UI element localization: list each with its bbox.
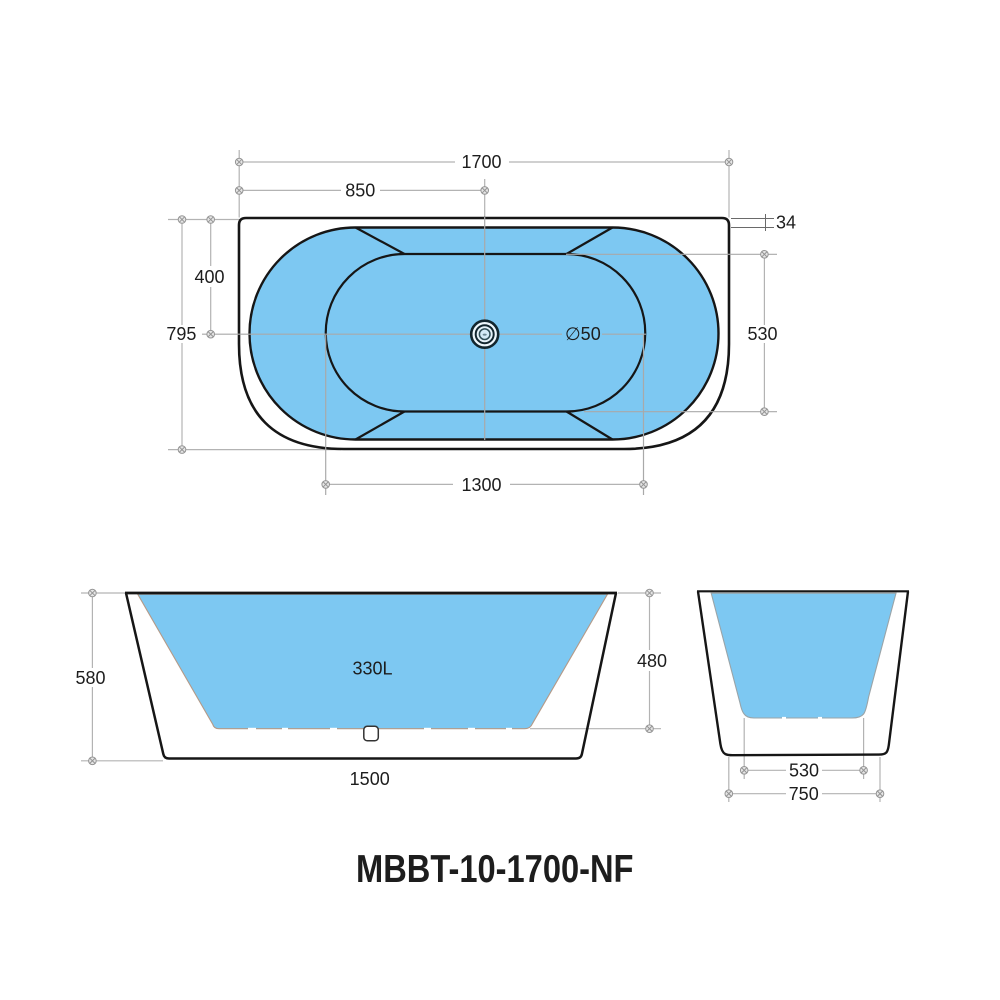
- svg-text:MBBT-10-1700-NF: MBBT-10-1700-NF: [356, 848, 634, 891]
- svg-text:530: 530: [789, 761, 819, 781]
- svg-text:∅50: ∅50: [565, 324, 601, 344]
- svg-text:750: 750: [789, 784, 819, 804]
- svg-text:850: 850: [345, 180, 375, 200]
- svg-text:1700: 1700: [461, 152, 501, 172]
- svg-text:34: 34: [776, 213, 796, 233]
- svg-text:1500: 1500: [350, 769, 390, 789]
- svg-text:480: 480: [637, 651, 667, 671]
- svg-text:1300: 1300: [461, 475, 501, 495]
- svg-text:580: 580: [75, 668, 105, 688]
- svg-text:330L: 330L: [352, 659, 392, 679]
- svg-text:400: 400: [194, 267, 224, 287]
- svg-text:795: 795: [166, 324, 196, 344]
- svg-text:530: 530: [747, 324, 777, 344]
